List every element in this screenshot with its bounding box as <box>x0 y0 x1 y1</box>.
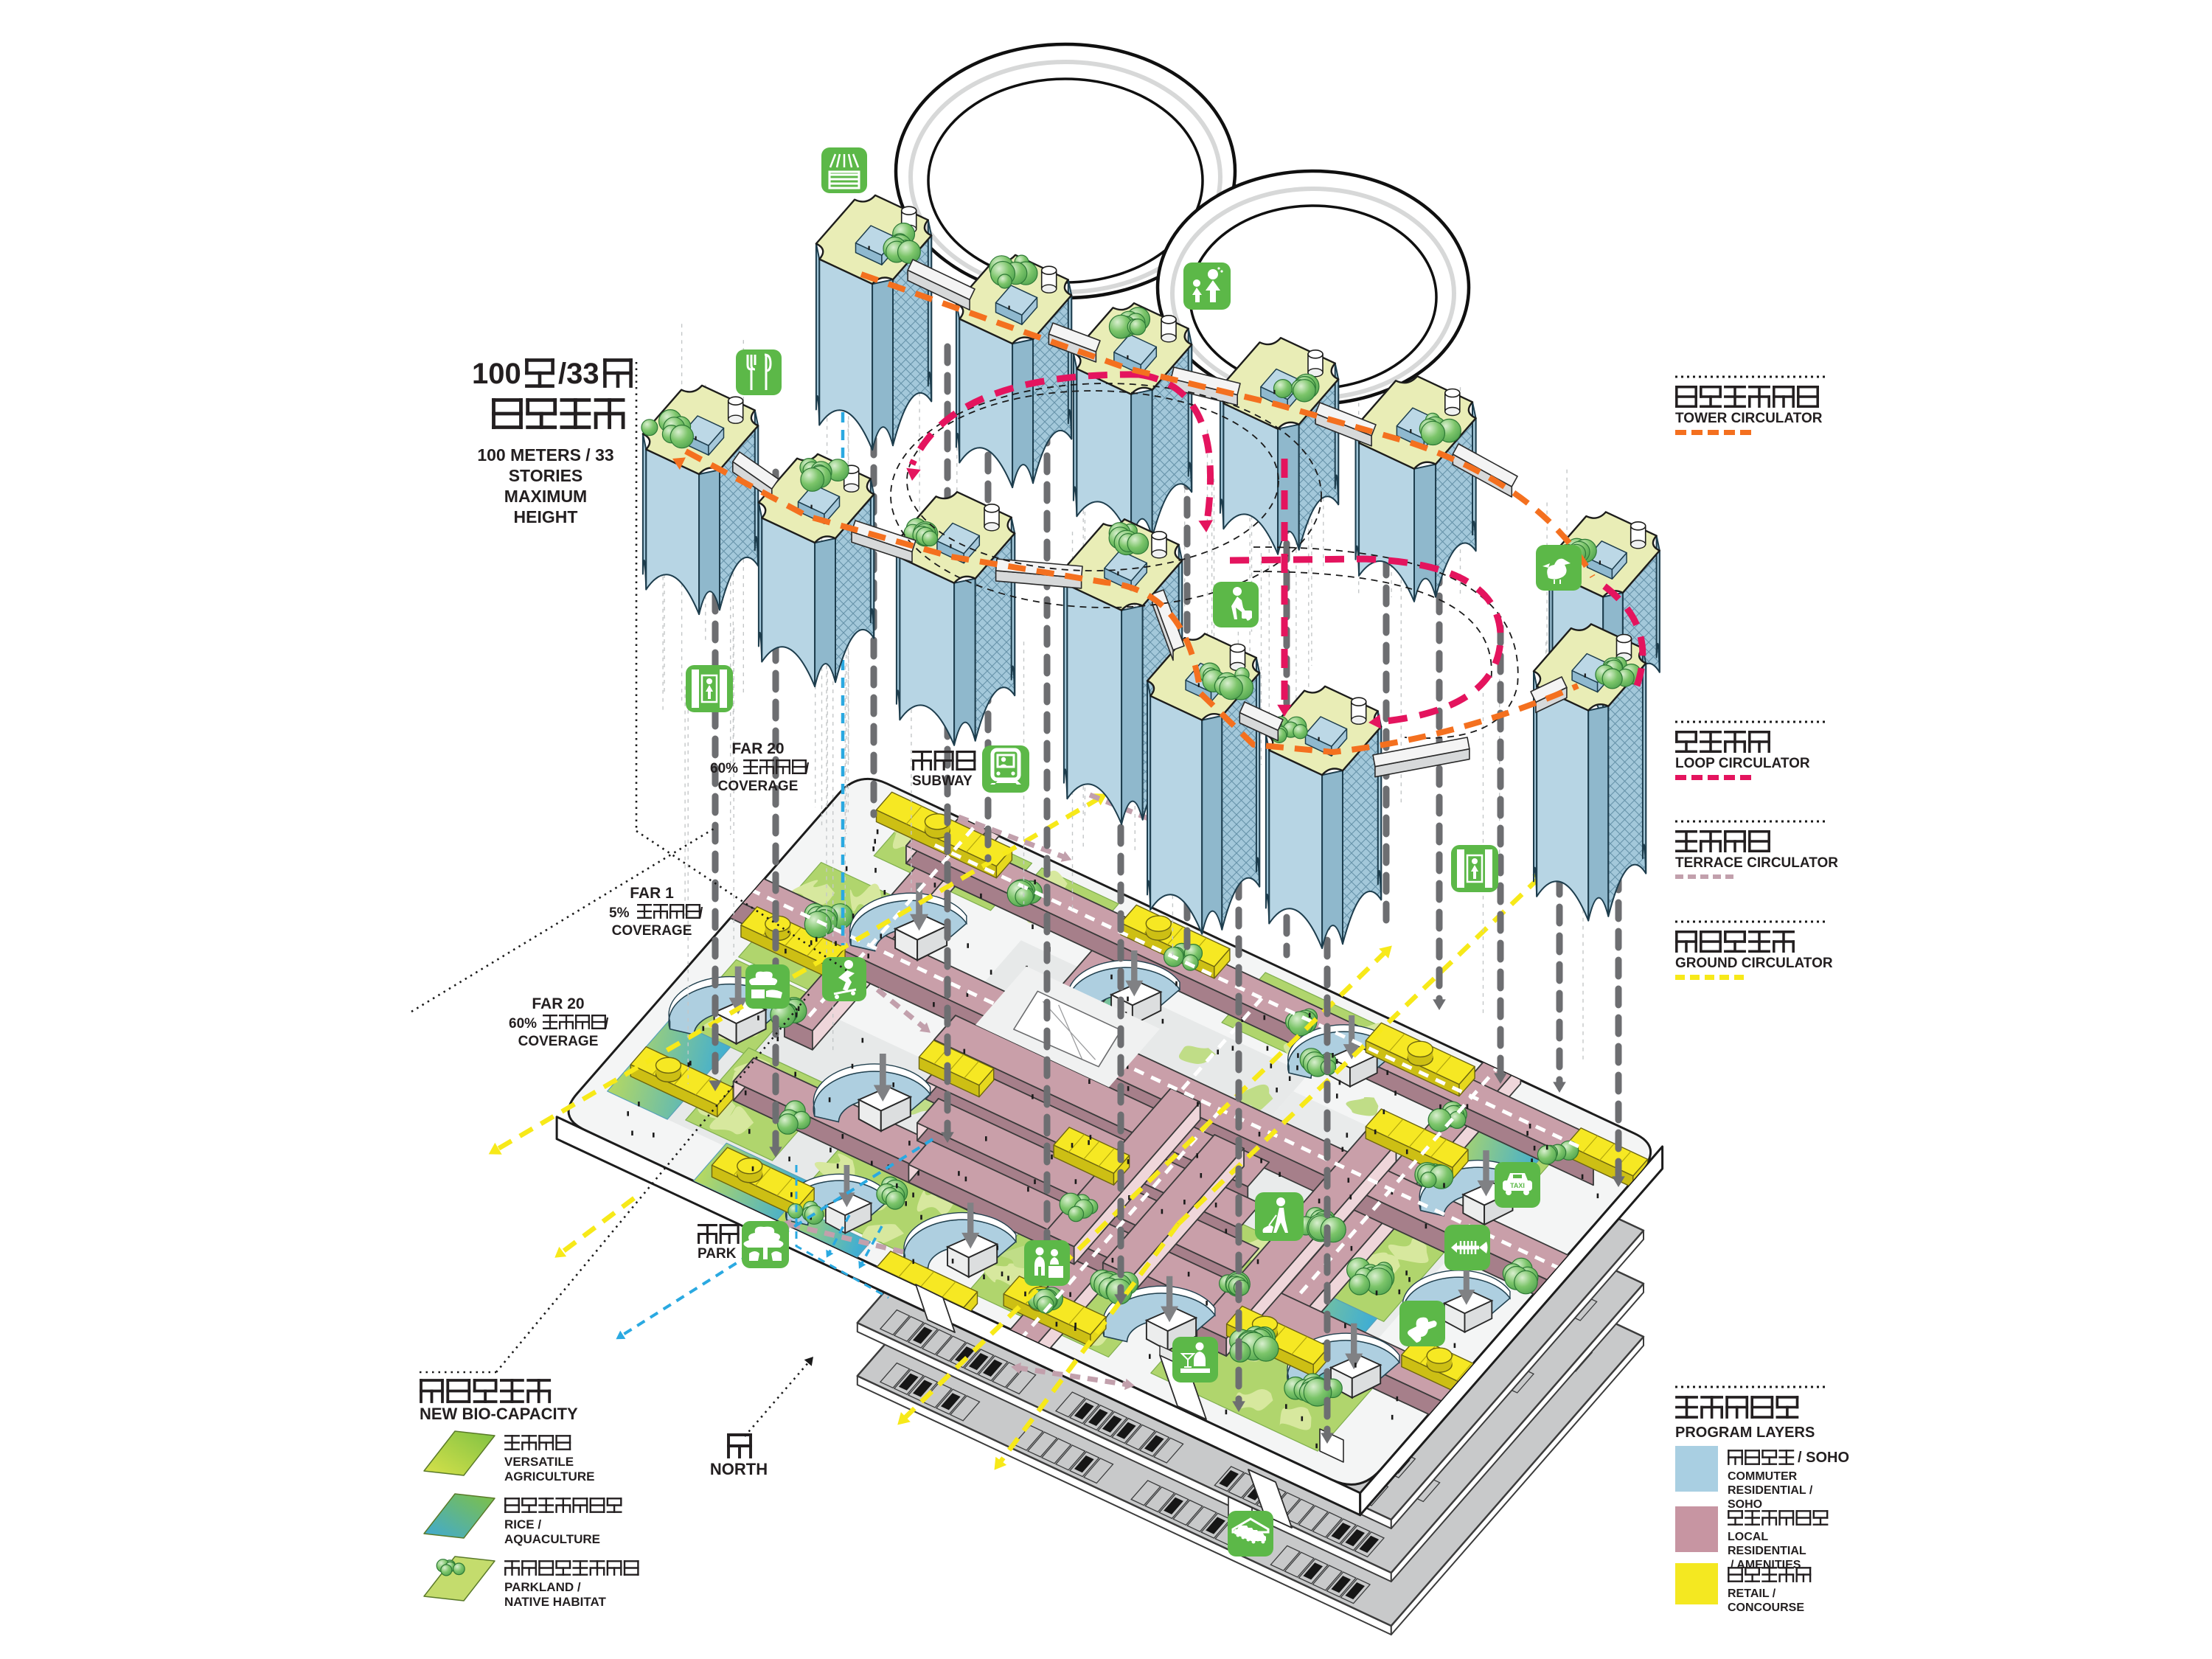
svg-text:RETAIL /: RETAIL / <box>1728 1587 1776 1600</box>
svg-text:60%: 60% <box>710 761 738 776</box>
svg-text:COMMUTER: COMMUTER <box>1728 1470 1798 1483</box>
svg-text:STORIES: STORIES <box>509 466 583 485</box>
svg-text:100 METERS / 33: 100 METERS / 33 <box>477 445 613 465</box>
svg-text:COVERAGE: COVERAGE <box>718 779 799 794</box>
svg-text:100: 100 <box>472 358 521 390</box>
svg-text:FAR 20: FAR 20 <box>731 740 784 757</box>
svg-text:COVERAGE: COVERAGE <box>612 923 692 939</box>
svg-text:5%: 5% <box>609 905 630 921</box>
svg-text:FAR 20: FAR 20 <box>532 995 584 1012</box>
svg-text:PARK: PARK <box>698 1246 737 1262</box>
svg-text:TERRACE CIRCULATOR: TERRACE CIRCULATOR <box>1675 855 1838 871</box>
svg-text:NATIVE HABITAT: NATIVE HABITAT <box>504 1595 606 1609</box>
svg-text:TAXI: TAXI <box>1510 1182 1525 1189</box>
svg-text:/ AMENITIES: / AMENITIES <box>1731 1559 1801 1571</box>
svg-text:NEW BIO-CAPACITY: NEW BIO-CAPACITY <box>420 1405 578 1423</box>
svg-text:COVERAGE: COVERAGE <box>518 1034 599 1049</box>
svg-text:HEIGHT: HEIGHT <box>514 507 578 526</box>
svg-text:/: / <box>805 761 810 776</box>
svg-text:LOCAL: LOCAL <box>1728 1531 1768 1543</box>
svg-text:/: / <box>605 1016 609 1032</box>
svg-text:SUBWAY: SUBWAY <box>912 773 973 789</box>
svg-text:GROUND CIRCULATOR: GROUND CIRCULATOR <box>1675 956 1833 971</box>
svg-text:SOHO: SOHO <box>1728 1498 1762 1511</box>
svg-text:AQUACULTURE: AQUACULTURE <box>504 1532 600 1546</box>
svg-text:VERSATILE: VERSATILE <box>504 1455 574 1469</box>
svg-text:/33: /33 <box>558 358 599 390</box>
svg-text:/: / <box>699 905 703 921</box>
svg-text:RESIDENTIAL /: RESIDENTIAL / <box>1728 1484 1813 1497</box>
svg-text:RICE /: RICE / <box>504 1517 541 1531</box>
svg-text:CONCOURSE: CONCOURSE <box>1728 1601 1804 1614</box>
svg-text:60%: 60% <box>509 1016 537 1032</box>
svg-text:RESIDENTIAL: RESIDENTIAL <box>1728 1545 1806 1557</box>
svg-text:NORTH: NORTH <box>710 1460 768 1478</box>
svg-text:PARKLAND /: PARKLAND / <box>504 1580 581 1594</box>
svg-text:TOWER CIRCULATOR: TOWER CIRCULATOR <box>1675 411 1823 426</box>
svg-text:FAR 1: FAR 1 <box>630 885 674 902</box>
svg-text:/ SOHO: / SOHO <box>1798 1450 1849 1466</box>
svg-text:PROGRAM LAYERS: PROGRAM LAYERS <box>1675 1425 1815 1441</box>
svg-text:LOOP CIRCULATOR: LOOP CIRCULATOR <box>1675 756 1810 771</box>
svg-text:AGRICULTURE: AGRICULTURE <box>504 1470 594 1484</box>
svg-text:MAXIMUM: MAXIMUM <box>504 487 587 506</box>
